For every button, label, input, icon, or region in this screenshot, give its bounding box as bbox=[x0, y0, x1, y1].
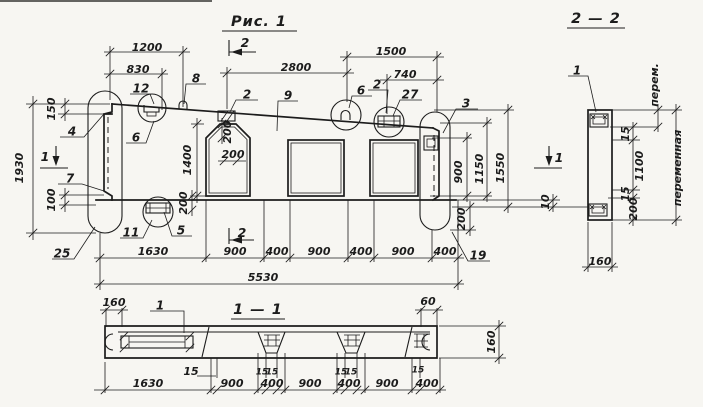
dim-15-s22-top: 15 bbox=[619, 126, 632, 142]
dim-200-s22: 200 bbox=[627, 197, 640, 220]
embed-double-t-icon bbox=[264, 335, 280, 346]
dim-15-p3: 15 bbox=[412, 366, 425, 376]
callout-2-center: 2 bbox=[243, 88, 251, 102]
section-2-2-title: 2 — 2 bbox=[571, 11, 621, 27]
dim-900-right: 900 bbox=[452, 160, 465, 183]
left-keyway-icon bbox=[105, 334, 113, 350]
callout-11: 11 bbox=[123, 226, 140, 240]
opening-rect-1 bbox=[288, 140, 344, 196]
dim-15-p2b: 15 bbox=[345, 368, 358, 378]
dim-900-s11-c: 900 bbox=[376, 377, 399, 390]
scan-edge-artifact bbox=[0, 0, 212, 2]
dim-900-c: 900 bbox=[392, 245, 415, 258]
dim-160-s11-right: 160 bbox=[485, 330, 498, 353]
left-end-detail-boundary bbox=[88, 91, 122, 233]
callout-4: 4 bbox=[67, 125, 76, 139]
dim-peremennaya: переменная bbox=[671, 130, 684, 207]
callout-leaders bbox=[52, 76, 596, 333]
dim-400-s11-c: 400 bbox=[415, 377, 439, 390]
right-keyway-icon bbox=[422, 334, 430, 350]
embed-bottom-s22-icon bbox=[589, 204, 607, 216]
dim-100: 100 bbox=[45, 188, 58, 211]
dim-160-s22: 160 bbox=[589, 255, 612, 268]
dim-1200: 1200 bbox=[132, 41, 163, 54]
pier-trapezoid-1 bbox=[258, 332, 285, 353]
dim-830: 830 bbox=[127, 63, 150, 76]
callout-6-left: 6 bbox=[132, 131, 140, 145]
callout-6-right: 6 bbox=[357, 84, 365, 98]
opening-rect-2 bbox=[370, 140, 418, 196]
dim-60: 60 bbox=[420, 295, 436, 308]
detail-circle-bottom bbox=[143, 197, 173, 227]
callout-27: 27 bbox=[402, 88, 419, 102]
embed-channel-5-icon bbox=[146, 203, 170, 213]
dim-perem: перем. bbox=[648, 63, 661, 107]
dim-900-s11-b: 900 bbox=[299, 377, 322, 390]
dimension-ticks bbox=[29, 48, 680, 394]
dim-15-s11: 15 bbox=[183, 365, 199, 378]
callout-25: 25 bbox=[54, 247, 71, 261]
dim-160-s11-left: 160 bbox=[103, 296, 126, 309]
dim-400-s11-b: 400 bbox=[337, 377, 361, 390]
detail-circle-6-right bbox=[331, 100, 361, 130]
dim-1500: 1500 bbox=[376, 45, 407, 58]
callout-8: 8 bbox=[192, 72, 200, 86]
callout-3: 3 bbox=[462, 97, 470, 111]
callout-12: 12 bbox=[133, 82, 150, 96]
dim-400-s11-a: 400 bbox=[260, 377, 284, 390]
dim-400-a: 400 bbox=[265, 245, 289, 258]
callout-1-s11: 1 bbox=[156, 299, 164, 313]
dimension-lines bbox=[26, 46, 682, 393]
dim-900-s11-a: 900 bbox=[221, 377, 244, 390]
embed-channel-long-icon bbox=[120, 332, 194, 352]
drawing-sheet: 2 2 1 1 Рис. 1 2 — 2 1 — 1 bbox=[0, 0, 703, 407]
dim-1930: 1930 bbox=[13, 152, 26, 183]
embed-double-t-icon bbox=[414, 334, 428, 348]
cut-arrow-right-icon bbox=[546, 156, 553, 166]
dim-1630-s11: 1630 bbox=[133, 377, 164, 390]
dim-740: 740 bbox=[394, 68, 417, 81]
embed-double-t-icon bbox=[344, 335, 360, 346]
section-1-1-view bbox=[105, 326, 437, 358]
loop-embed-6-icon bbox=[341, 111, 350, 121]
dim-900-b: 900 bbox=[308, 245, 331, 258]
embed-top-s22-icon bbox=[590, 114, 608, 127]
dim-5530: 5530 bbox=[248, 271, 279, 284]
dim-10: 10 bbox=[539, 194, 552, 210]
dim-1150: 1150 bbox=[473, 153, 486, 184]
drawing-svg: 2 2 1 1 Рис. 1 2 — 2 1 — 1 bbox=[0, 0, 703, 407]
cut-label-2-bottom: 2 bbox=[238, 225, 247, 240]
callout-9: 9 bbox=[284, 89, 292, 103]
callout-1-s22: 1 bbox=[573, 64, 581, 78]
dim-150: 150 bbox=[45, 97, 58, 120]
main-elevation-view bbox=[88, 91, 456, 233]
callout-2-right: 2 bbox=[373, 78, 381, 92]
dim-900-a: 900 bbox=[224, 245, 247, 258]
callout-7: 7 bbox=[66, 172, 75, 186]
dim-1400: 1400 bbox=[181, 144, 194, 175]
cut-label-2-top: 2 bbox=[241, 35, 250, 50]
pier-trapezoid-2 bbox=[337, 332, 365, 353]
dim-200-right-end: 200 bbox=[455, 207, 468, 230]
dim-200-left-notch: 200 bbox=[177, 191, 190, 214]
section-2-2-view bbox=[588, 110, 612, 220]
callout-19: 19 bbox=[470, 249, 487, 263]
dim-1100: 1100 bbox=[633, 150, 646, 181]
dim-200-chamfer-h: 200 bbox=[222, 148, 245, 161]
dim-15-p1b: 15 bbox=[266, 368, 279, 378]
figure-title: Рис. 1 bbox=[231, 14, 287, 30]
callout-5: 5 bbox=[177, 224, 185, 238]
dim-2800: 2800 bbox=[281, 61, 312, 74]
cut-arrow-left-icon bbox=[53, 156, 60, 166]
dim-1630: 1630 bbox=[138, 245, 169, 258]
dim-400-c: 400 bbox=[433, 245, 457, 258]
dim-200-chamfer-v: 200 bbox=[221, 120, 234, 143]
dim-400-b: 400 bbox=[349, 245, 373, 258]
cut-label-1-left: 1 bbox=[41, 149, 50, 164]
dim-1550: 1550 bbox=[494, 152, 507, 183]
cut-label-1-right: 1 bbox=[555, 150, 564, 165]
section-1-1-title: 1 — 1 bbox=[233, 302, 283, 318]
